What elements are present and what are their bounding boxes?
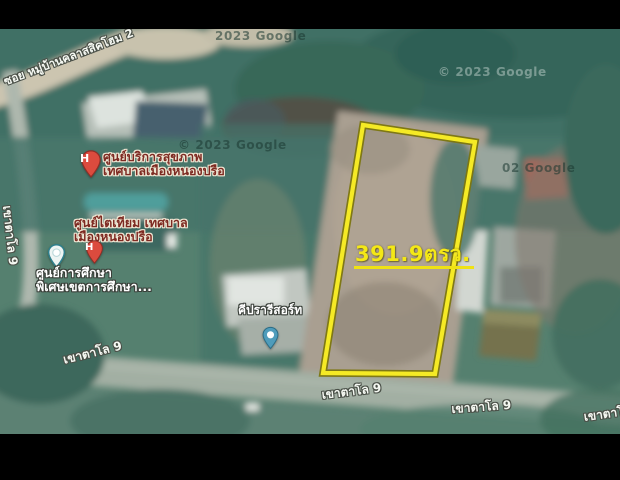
poi-label-health-center[interactable]: ศูนย์บริการสุขภาพ เทศบาลเมืองหนองปรือ (103, 150, 225, 177)
google-watermark: © 2023 Google (438, 66, 547, 79)
poi-label-special-education-center[interactable]: ศูนย์การศึกษา พิเศษเขตการศึกษา... (36, 266, 152, 294)
google-watermark: 2023 Google (215, 30, 306, 43)
poi-label-line: ศูนย์การศึกษา (36, 266, 152, 280)
letterbox-bar-top (0, 0, 620, 29)
poi-label-dialysis-center[interactable]: ศูนย์ไตเทียม เทศบาล เมืองหนองปรือ (74, 216, 188, 243)
poi-label-line: ศูนย์ไตเทียม เทศบาล (74, 216, 188, 230)
poi-label-line: พิเศษเขตการศึกษา... (36, 280, 152, 294)
google-watermark: 02 Google (502, 162, 575, 175)
poi-label-line: ศูนย์บริการสุขภาพ (103, 150, 225, 164)
poi-label-line: เทศบาลเมืองหนองปรือ (103, 164, 225, 178)
satellite-map[interactable]: 2023 Google © 2023 Google © 2023 Google … (0, 29, 620, 434)
letterboxed-frame: 2023 Google © 2023 Google © 2023 Google … (0, 0, 620, 480)
plot-area-label: 391.9ตรว. (354, 243, 474, 269)
poi-label-line: คีปรารีสอร์ท (238, 303, 302, 317)
letterbox-bar-bottom (0, 434, 620, 480)
poi-label-resort[interactable]: คีปรารีสอร์ท (238, 303, 302, 317)
